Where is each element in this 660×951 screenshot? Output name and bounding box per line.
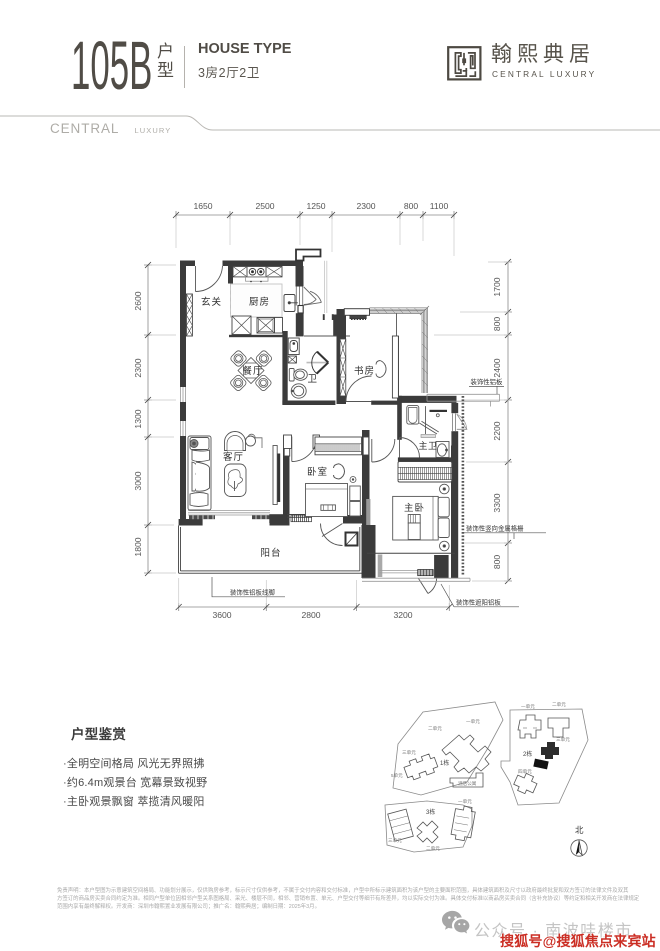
svg-text:5单元: 5单元 [391, 772, 403, 779]
svg-text:3栋: 3栋 [426, 808, 435, 816]
svg-text:装饰性铝板: 装饰性铝板 [471, 377, 504, 386]
svg-text:三单元: 三单元 [556, 736, 570, 743]
svg-text:一单元: 一单元 [521, 703, 535, 710]
svg-text:卫: 卫 [308, 374, 318, 385]
svg-text:卧室: 卧室 [307, 466, 328, 478]
svg-text:800: 800 [492, 555, 502, 570]
svg-text:2栋: 2栋 [523, 750, 532, 758]
svg-text:1栋: 1栋 [440, 759, 449, 767]
svg-text:800: 800 [404, 201, 419, 211]
svg-text:厨房: 厨房 [249, 296, 270, 308]
svg-text:3200: 3200 [393, 610, 412, 620]
svg-text:1700: 1700 [492, 277, 502, 296]
svg-text:1300: 1300 [133, 409, 143, 428]
svg-text:2400: 2400 [492, 358, 502, 377]
svg-text:2300: 2300 [133, 358, 143, 377]
svg-text:四单元: 四单元 [518, 768, 532, 775]
svg-text:800: 800 [492, 317, 502, 332]
svg-text:一单元: 一单元 [466, 718, 480, 725]
svg-text:书房: 书房 [354, 365, 375, 377]
svg-text:北: 北 [575, 825, 584, 835]
svg-text:三单元: 三单元 [402, 749, 416, 756]
svg-text:餐厅: 餐厅 [243, 365, 264, 377]
svg-text:客厅: 客厅 [223, 451, 244, 463]
svg-text:1100: 1100 [430, 201, 449, 211]
svg-text:装饰性遮阳铝板: 装饰性遮阳铝板 [456, 598, 501, 607]
svg-text:二单元: 二单元 [428, 725, 442, 732]
svg-text:2600: 2600 [133, 291, 143, 310]
svg-text:2800: 2800 [301, 610, 320, 620]
svg-text:阳台: 阳台 [261, 547, 282, 559]
svg-text:二单元: 二单元 [552, 701, 566, 708]
svg-text:3600: 3600 [212, 610, 231, 620]
svg-text:装饰性竖向金属格栅: 装饰性竖向金属格栅 [466, 524, 524, 533]
svg-text:1800: 1800 [133, 537, 143, 556]
svg-text:一单元: 一单元 [458, 798, 472, 805]
svg-text:玄关: 玄关 [201, 296, 222, 308]
svg-text:主卧: 主卧 [404, 502, 425, 514]
svg-text:1650: 1650 [193, 201, 212, 211]
svg-text:3300: 3300 [492, 493, 502, 512]
svg-text:装饰性铝板线脚: 装饰性铝板线脚 [230, 588, 275, 597]
svg-text:主卫: 主卫 [419, 440, 438, 451]
svg-text:2500: 2500 [255, 201, 274, 211]
svg-text:2200: 2200 [492, 421, 502, 440]
svg-text:3000: 3000 [133, 471, 143, 490]
svg-text:2300: 2300 [356, 201, 375, 211]
svg-text:1250: 1250 [306, 201, 325, 211]
svg-text:二单元: 二单元 [426, 845, 440, 852]
svg-text:三单元: 三单元 [388, 837, 402, 844]
svg-text:酒店公寓: 酒店公寓 [458, 780, 477, 787]
